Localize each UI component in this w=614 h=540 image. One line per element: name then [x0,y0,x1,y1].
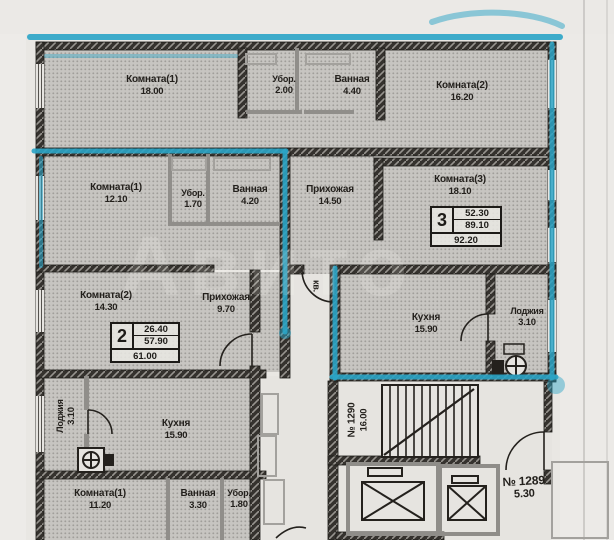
corridor-label: № 1289 5.30 [502,473,546,503]
room-area: 14.30 [80,302,132,313]
room-name: Комната(1) [74,488,126,499]
stamp-aux-area: 89.10 [454,220,500,232]
corridor-area: 5.30 [503,487,546,502]
room-area: 3.10 [510,317,543,328]
stamp-number: 2 [112,324,134,348]
room-area: 18.10 [434,186,486,197]
room-name: Ванная [180,488,215,499]
room-name: Ванная [334,74,369,85]
apartment-stamp-2: 2 26.40 57.90 61.00 [110,322,180,363]
room-label-3k-loggia: Лоджия 3.10 [510,306,543,328]
room-label-3k-hall: Прихожая 14.50 [306,184,354,207]
stamp-living-area: 26.40 [134,324,178,336]
room-name: Лоджия [510,306,543,316]
room-name: Кухня [412,312,440,323]
room-area: 1.80 [227,499,250,510]
room-label-1k-kitchen: Кухня 15.90 [162,418,190,441]
room-label-2k-wc: Убор. 1.70 [181,188,204,210]
room-label-1k-bath: Ванная 3.30 [180,488,215,511]
stairwell-number: № 1290 [346,403,357,438]
room-name: Кухня [162,418,190,429]
stamp-aux-area: 57.90 [134,336,178,348]
room-area: 15.90 [412,324,440,335]
room-label-top-room1: Комната(1) 18.00 [126,74,178,97]
room-name: Комната(2) [80,290,132,301]
room-label-1k-loggia: Лоджия 3.10 [55,399,77,432]
room-label-1k-room1: Комната(1) 11.20 [74,488,126,511]
apartment-entrance-label: кв. [311,280,322,292]
room-name: Прихожая [202,292,250,303]
room-area: 12.10 [90,194,142,205]
stairwell-area: 16.00 [358,403,369,438]
room-name: Комната(2) [436,80,488,91]
room-area: 3.30 [180,500,215,511]
room-area: 4.40 [334,86,369,97]
room-name: Убор. [227,488,250,498]
stamp-number: 3 [432,208,454,232]
room-area: 4.20 [232,196,267,207]
room-label-top-bath: Ванная 4.40 [334,74,369,97]
room-area: 1.70 [181,199,204,210]
entrance-text: кв. [311,280,321,292]
staircase [382,385,478,457]
room-name: Комната(1) [126,74,178,85]
room-area: 16.20 [436,92,488,103]
stairwell-label: № 1290 16.00 [346,403,369,438]
room-name: Ванная [232,184,267,195]
room-label-3k-room3: Комната(3) 18.10 [434,174,486,197]
floorplan-photo: Авито Комната(1) 18.00 Убор. 2.00 Ванная… [0,0,614,540]
room-name: Убор. [272,74,295,84]
room-area: 9.70 [202,304,250,315]
stamp-total-area: 61.00 [112,348,178,361]
room-area: 3.10 [66,399,77,432]
apartment-stamp-3: 3 52.30 89.10 92.20 [430,206,502,247]
floorplan-drawing [0,0,614,540]
room-label-2k-room1: Комната(1) 12.10 [90,182,142,205]
room-label-2k-room2: Комната(2) 14.30 [80,290,132,313]
stamp-total-area: 92.20 [432,232,500,245]
room-label-2k-hall: Прихожая 9.70 [202,292,250,315]
room-area: 18.00 [126,86,178,97]
room-name: Убор. [181,188,204,198]
room-name: Комната(3) [434,174,486,185]
room-label-2k-bath: Ванная 4.20 [232,184,267,207]
room-label-3k-kitchen: Кухня 15.90 [412,312,440,335]
room-label-1k-wc: Убор. 1.80 [227,488,250,510]
room-area: 11.20 [74,500,126,511]
corridor-number: № 1289 [502,473,545,489]
stamp-living-area: 52.30 [454,208,500,220]
room-area: 14.50 [306,196,354,207]
room-name: Прихожая [306,184,354,195]
room-name: Лоджия [55,399,65,432]
room-name: Комната(1) [90,182,142,193]
room-label-top-wc: Убор. 2.00 [272,74,295,96]
room-area: 15.90 [162,430,190,441]
room-area: 2.00 [272,85,295,96]
room-label-top-room2: Комната(2) 16.20 [436,80,488,103]
